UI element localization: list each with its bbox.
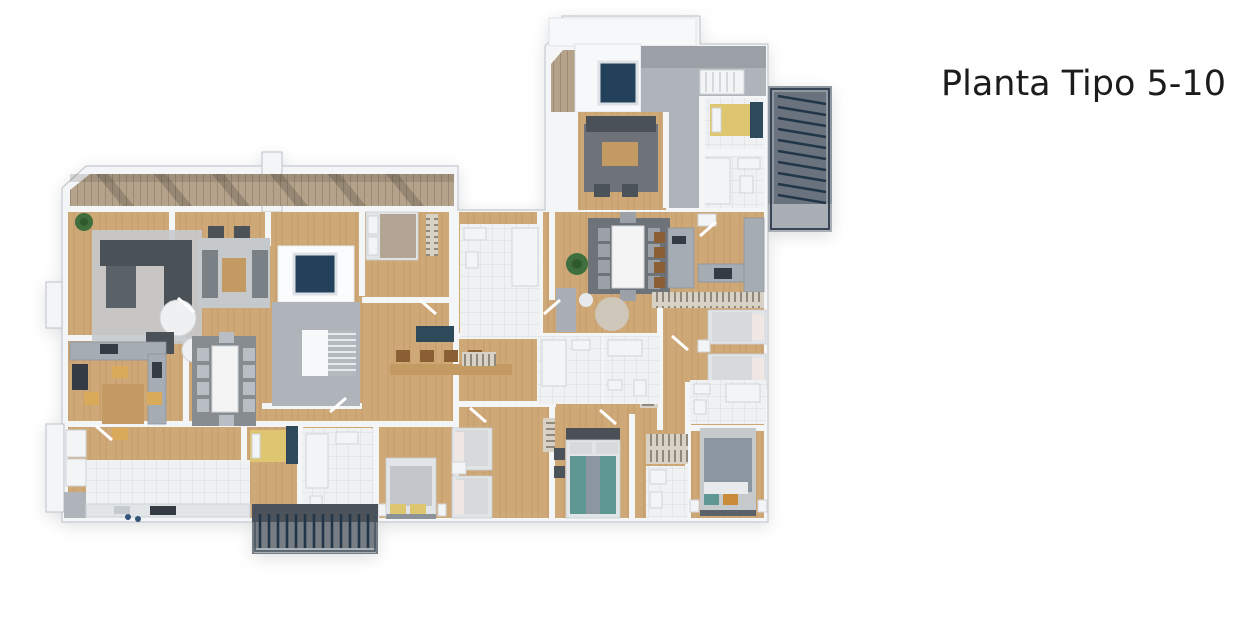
louver-balcony-bottom bbox=[252, 504, 378, 554]
round-coffee-table bbox=[160, 300, 196, 336]
bedroom-double-right bbox=[690, 428, 767, 516]
living-room-center bbox=[198, 226, 270, 308]
dryer bbox=[66, 459, 86, 486]
bathtub bbox=[704, 158, 730, 204]
sofa bbox=[586, 116, 656, 132]
sink bbox=[650, 470, 666, 484]
bathtub bbox=[512, 228, 538, 286]
central-stairwell bbox=[272, 246, 360, 406]
nightstand bbox=[690, 500, 699, 512]
closet-hangers bbox=[646, 434, 688, 464]
closet-hangers bbox=[462, 352, 496, 366]
round-rug bbox=[595, 297, 629, 331]
sink bbox=[608, 380, 622, 390]
stove bbox=[714, 268, 732, 279]
desk-chair bbox=[579, 293, 593, 307]
coffee-table bbox=[602, 142, 638, 166]
toilet bbox=[466, 252, 478, 268]
screenshot-canvas: Planta Tipo 5-10 bbox=[0, 0, 1248, 618]
closet-hangers bbox=[426, 214, 438, 256]
bathtub bbox=[726, 384, 760, 402]
plunge-pool bbox=[599, 62, 637, 104]
bedroom-bottom-center-left bbox=[378, 458, 446, 519]
nightstand bbox=[758, 500, 767, 512]
desk-bench bbox=[416, 326, 454, 342]
terrace-pergola-deck bbox=[70, 174, 454, 206]
penthouse-unit bbox=[549, 18, 766, 210]
sink bbox=[694, 384, 710, 394]
washer bbox=[66, 430, 86, 457]
toilet bbox=[694, 400, 706, 414]
cabinet bbox=[556, 288, 576, 332]
stairwell-skylight bbox=[294, 254, 336, 294]
bathtub bbox=[306, 434, 328, 488]
bathroom-mid-right bbox=[690, 380, 766, 424]
louver-balcony-right bbox=[768, 86, 832, 232]
closet-and-bath-bottom-right bbox=[646, 434, 688, 518]
nightstand bbox=[452, 462, 466, 474]
toilet bbox=[740, 176, 753, 193]
living-room-left bbox=[75, 213, 206, 362]
penthouse-living-room bbox=[584, 116, 658, 197]
left-balcony-large bbox=[46, 424, 64, 512]
closet-hangers bbox=[543, 418, 555, 452]
bedroom-yellow-left bbox=[250, 426, 298, 464]
sink bbox=[738, 158, 760, 169]
closet-hangers-strip bbox=[652, 292, 764, 308]
toilet bbox=[650, 492, 662, 508]
bathtub bbox=[608, 340, 642, 356]
bathroom-hall-large bbox=[460, 224, 540, 338]
nightstand bbox=[698, 340, 710, 352]
penthouse-roof bbox=[549, 18, 696, 46]
sink bbox=[572, 340, 590, 350]
dining-table-white bbox=[612, 226, 644, 288]
sink bbox=[336, 432, 358, 444]
dining-table-marble bbox=[192, 332, 256, 426]
plan-title: Planta Tipo 5-10 bbox=[941, 64, 1241, 104]
coffee-table bbox=[222, 258, 246, 292]
bathtub bbox=[542, 340, 566, 386]
bedroom-yellow-penthouse bbox=[710, 102, 763, 138]
sink bbox=[464, 228, 486, 240]
toilet bbox=[634, 380, 646, 396]
left-balcony-small bbox=[46, 282, 62, 328]
